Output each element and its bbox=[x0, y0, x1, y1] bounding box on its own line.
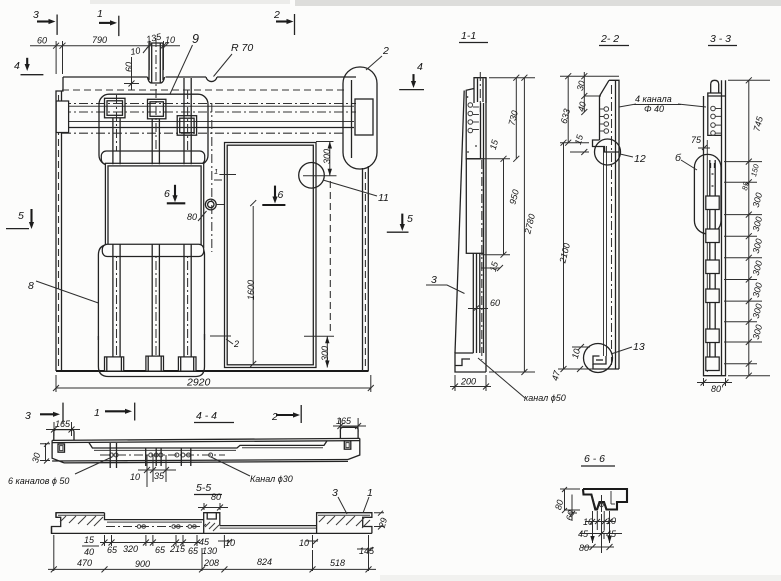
svg-text:900: 900 bbox=[135, 559, 150, 569]
svg-text:824: 824 bbox=[257, 557, 272, 567]
svg-text:300: 300 bbox=[751, 282, 764, 299]
svg-text:320: 320 bbox=[123, 544, 138, 554]
svg-text:60: 60 bbox=[37, 36, 47, 46]
svg-text:215: 215 bbox=[169, 544, 186, 554]
svg-text:15: 15 bbox=[84, 535, 95, 545]
svg-text:10: 10 bbox=[299, 538, 309, 548]
svg-text:13: 13 bbox=[633, 341, 645, 353]
svg-text:3: 3 bbox=[25, 410, 31, 422]
svg-text:150: 150 bbox=[749, 162, 761, 177]
svg-text:5-5: 5-5 bbox=[196, 482, 211, 494]
svg-text:6 каналов ϕ 50: 6 каналов ϕ 50 bbox=[8, 476, 69, 486]
svg-text:300: 300 bbox=[751, 303, 764, 320]
svg-text:745: 745 bbox=[752, 115, 766, 133]
svg-text:300: 300 bbox=[751, 192, 764, 209]
svg-text:15: 15 bbox=[488, 138, 500, 151]
svg-text:3 - 3: 3 - 3 bbox=[710, 33, 731, 45]
svg-text:5: 5 bbox=[407, 213, 413, 225]
svg-text:3: 3 bbox=[33, 9, 39, 21]
svg-text:10: 10 bbox=[225, 538, 235, 548]
svg-text:80: 80 bbox=[579, 543, 589, 553]
svg-text:1-1: 1-1 bbox=[461, 30, 476, 42]
svg-text:730: 730 bbox=[507, 109, 520, 126]
svg-text:10: 10 bbox=[570, 348, 582, 360]
svg-text:1: 1 bbox=[94, 407, 100, 419]
svg-text:1: 1 bbox=[214, 167, 218, 176]
svg-text:300: 300 bbox=[322, 149, 332, 164]
svg-text:6: 6 bbox=[278, 189, 284, 201]
svg-text:130: 130 bbox=[202, 546, 217, 556]
svg-text:47: 47 bbox=[550, 369, 562, 382]
svg-text:4 - 4: 4 - 4 bbox=[196, 410, 217, 422]
svg-text:45: 45 bbox=[199, 537, 210, 547]
svg-text:б: б bbox=[675, 152, 682, 164]
svg-text:80: 80 bbox=[553, 499, 565, 511]
svg-text:29: 29 bbox=[377, 517, 389, 530]
svg-text:9: 9 bbox=[192, 32, 199, 46]
svg-text:300: 300 bbox=[751, 260, 764, 277]
svg-text:1: 1 bbox=[97, 8, 103, 20]
svg-text:2: 2 bbox=[233, 339, 239, 349]
svg-text:300: 300 bbox=[320, 346, 330, 361]
svg-text:1: 1 bbox=[367, 487, 373, 499]
svg-text:4 канала: 4 канала bbox=[635, 94, 672, 104]
svg-text:2- 2: 2- 2 bbox=[600, 33, 619, 45]
svg-text:80': 80' bbox=[711, 384, 723, 394]
svg-text:40: 40 bbox=[84, 547, 94, 557]
svg-text:470: 470 bbox=[77, 558, 92, 568]
svg-text:3: 3 bbox=[431, 274, 437, 286]
svg-text:75: 75 bbox=[691, 135, 702, 145]
svg-text:2: 2 bbox=[382, 45, 389, 57]
svg-text:633: 633 bbox=[559, 108, 572, 125]
svg-text:60: 60 bbox=[124, 62, 134, 72]
svg-text:15: 15 bbox=[573, 133, 585, 146]
svg-text:80: 80 bbox=[187, 212, 197, 222]
svg-text:Канал ϕ30: Канал ϕ30 bbox=[250, 474, 293, 484]
svg-text:Φ 40: Φ 40 bbox=[644, 104, 664, 114]
svg-text:2: 2 bbox=[271, 411, 278, 423]
svg-text:10: 10 bbox=[130, 472, 140, 482]
svg-text:80: 80 bbox=[211, 492, 221, 502]
svg-text:2: 2 bbox=[273, 9, 280, 21]
svg-text:65: 65 bbox=[188, 546, 199, 556]
svg-text:165: 165 bbox=[336, 416, 352, 426]
svg-text:4: 4 bbox=[417, 61, 423, 73]
svg-text:1600: 1600 bbox=[246, 280, 256, 300]
svg-text:2920: 2920 bbox=[186, 377, 211, 389]
svg-text:5: 5 bbox=[18, 210, 24, 222]
svg-text:30: 30 bbox=[575, 80, 587, 92]
svg-text:6 - 6: 6 - 6 bbox=[584, 453, 605, 465]
svg-text:2100: 2100 bbox=[557, 242, 572, 265]
svg-text:790: 790 bbox=[92, 35, 107, 45]
svg-text:3: 3 bbox=[332, 487, 338, 499]
svg-text:950: 950 bbox=[508, 188, 521, 205]
svg-text:300: 300 bbox=[751, 238, 764, 255]
svg-text:300: 300 bbox=[751, 216, 764, 233]
svg-text:208: 208 bbox=[203, 558, 219, 568]
svg-text:6: 6 bbox=[164, 188, 170, 200]
svg-text:11: 11 bbox=[378, 192, 389, 204]
svg-text:15: 15 bbox=[488, 260, 500, 273]
svg-text:518: 518 bbox=[330, 558, 345, 568]
svg-text:65: 65 bbox=[155, 545, 166, 555]
svg-text:R 70: R 70 bbox=[231, 42, 253, 54]
svg-text:10: 10 bbox=[165, 35, 175, 45]
svg-text:65: 65 bbox=[107, 545, 118, 555]
svg-text:300: 300 bbox=[751, 324, 764, 341]
svg-text:8: 8 bbox=[28, 280, 34, 292]
svg-text:4: 4 bbox=[14, 60, 20, 72]
svg-text:60: 60 bbox=[490, 298, 500, 308]
svg-text:30: 30 bbox=[30, 452, 42, 464]
svg-text:канал ϕ50: канал ϕ50 bbox=[524, 393, 566, 403]
svg-text:165: 165 bbox=[55, 419, 71, 429]
svg-text:12: 12 bbox=[634, 153, 646, 165]
svg-text:10: 10 bbox=[130, 45, 142, 57]
svg-text:200: 200 bbox=[460, 377, 476, 387]
svg-text:40: 40 bbox=[576, 101, 588, 113]
